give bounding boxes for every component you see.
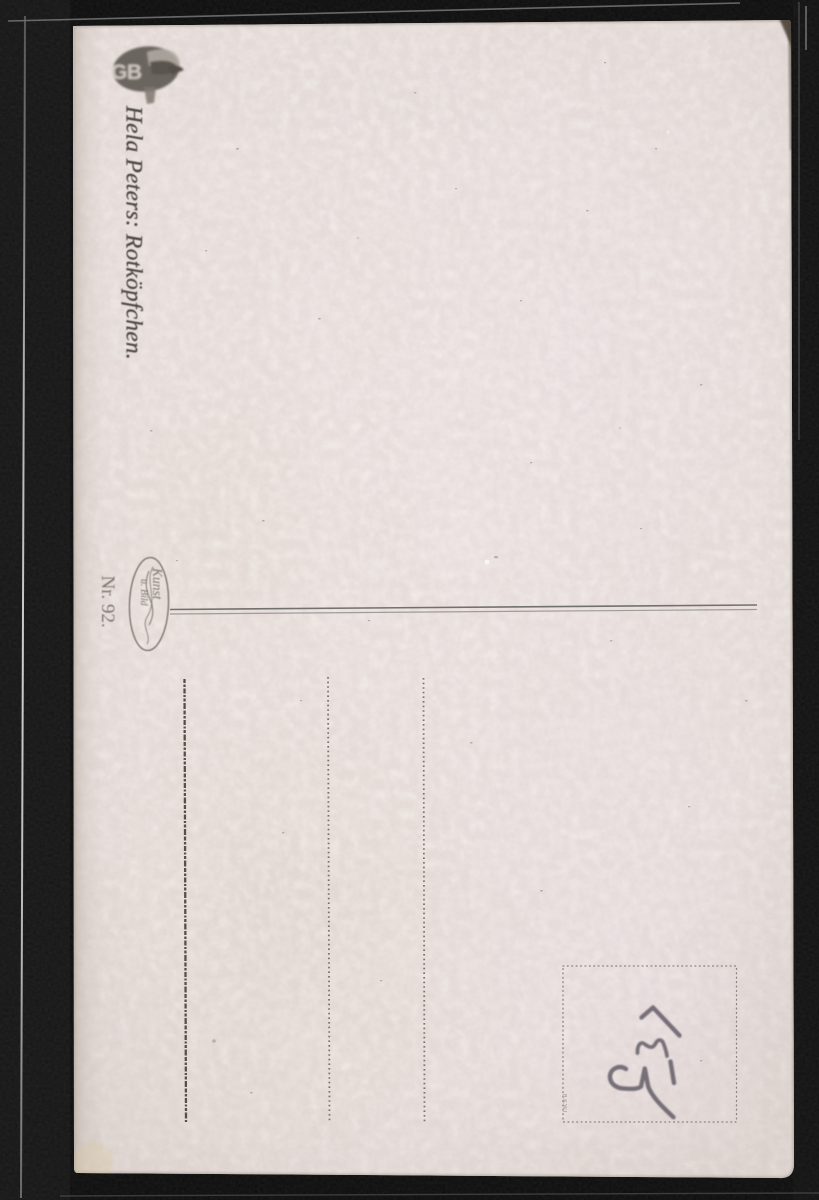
svg-text:Hela Peters: Rotköpfchen.: Hela Peters: Rotköpfchen. — [121, 105, 147, 360]
svg-text:B.K.W.I.: B.K.W.I. — [561, 1094, 567, 1114]
svg-text:Kunst: Kunst — [150, 567, 165, 601]
svg-text:Nr. 92.: Nr. 92. — [97, 576, 118, 628]
svg-text:GB: GB — [111, 61, 142, 84]
